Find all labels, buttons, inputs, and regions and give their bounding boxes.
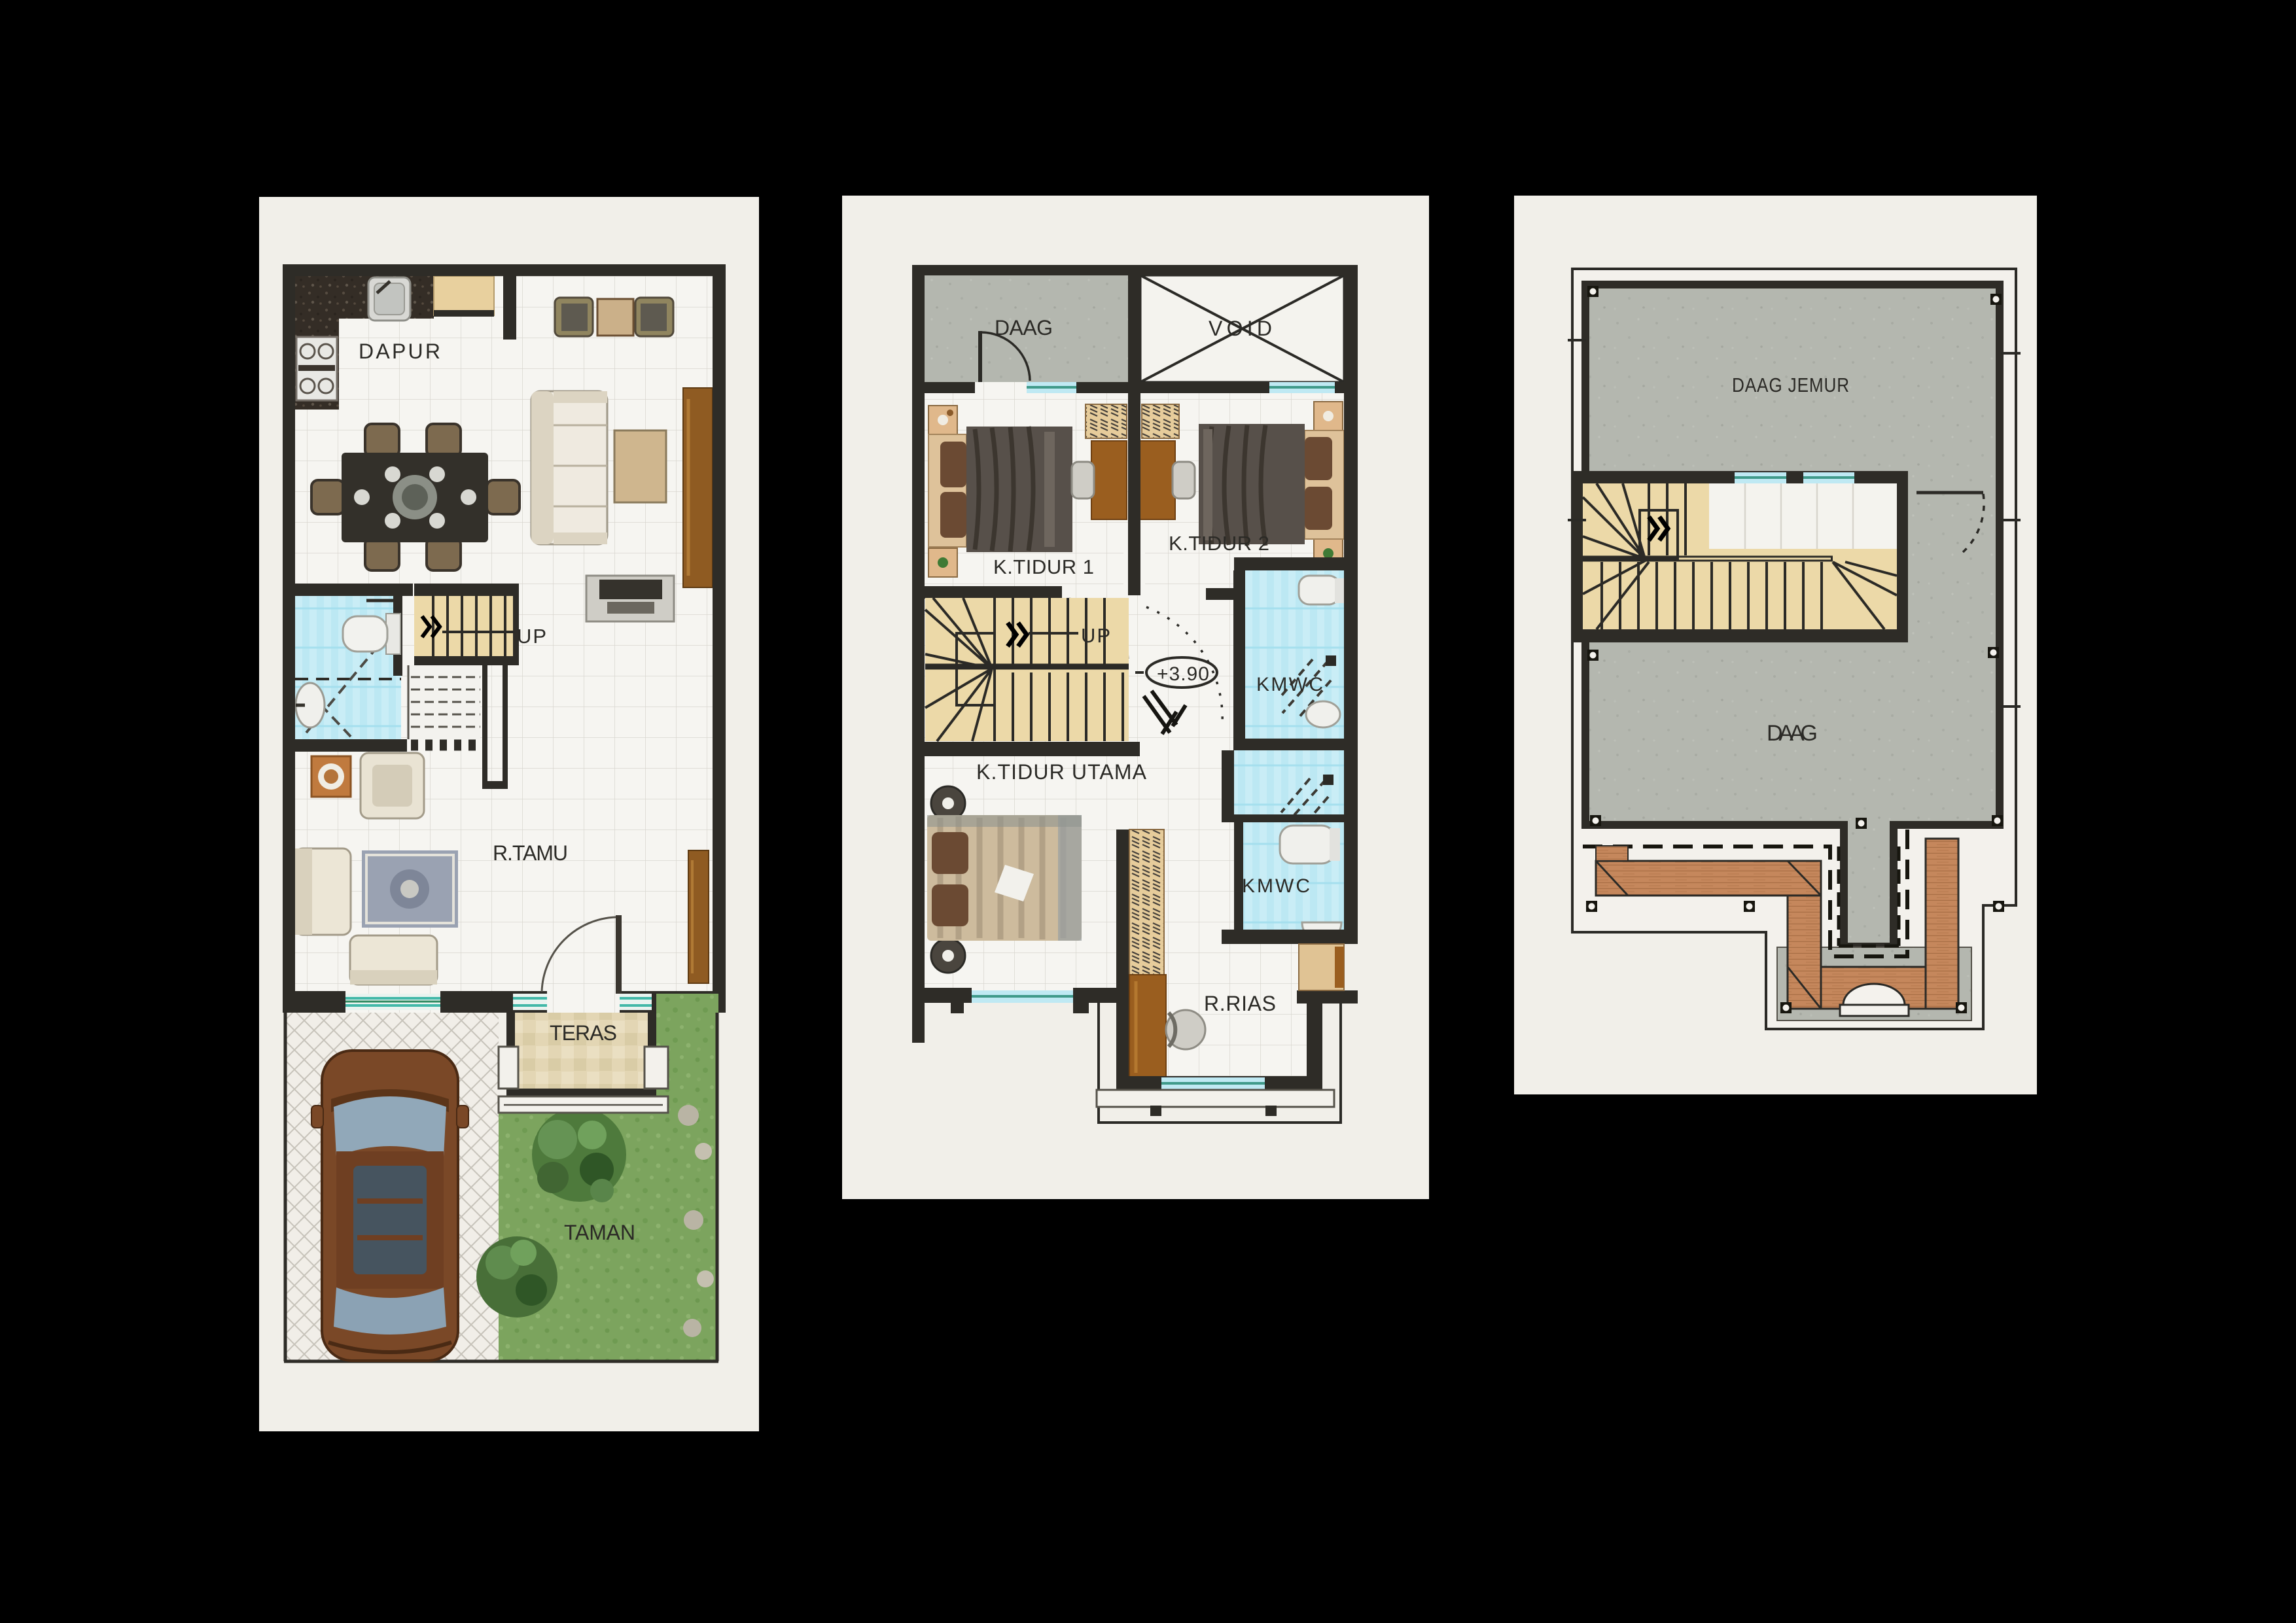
svg-text:UP: UP	[1081, 624, 1112, 647]
svg-text:+3.90: +3.90	[1157, 663, 1210, 685]
svg-text:K.TIDUR 1: K.TIDUR 1	[993, 555, 1095, 578]
svg-text:TERAS: TERAS	[550, 1021, 619, 1045]
svg-text:KMWC: KMWC	[1256, 674, 1324, 695]
svg-text:DAAG: DAAG	[1767, 721, 1819, 746]
svg-text:K.TIDUR UTAMA: K.TIDUR UTAMA	[976, 760, 1148, 784]
svg-text:UP: UP	[517, 625, 548, 648]
svg-text:K.TIDUR 2: K.TIDUR 2	[1169, 532, 1271, 555]
svg-text:R.TAMU: R.TAMU	[493, 841, 570, 865]
svg-text:DAAG: DAAG	[995, 316, 1055, 340]
svg-text:TAMAN: TAMAN	[564, 1221, 637, 1244]
svg-text:KMWC: KMWC	[1242, 875, 1311, 897]
svg-text:DAPUR: DAPUR	[359, 340, 442, 363]
svg-text:R.RIAS: R.RIAS	[1204, 992, 1277, 1015]
svg-text:VOID: VOID	[1209, 317, 1274, 340]
svg-text:DAAG JEMUR: DAAG JEMUR	[1732, 374, 1850, 396]
